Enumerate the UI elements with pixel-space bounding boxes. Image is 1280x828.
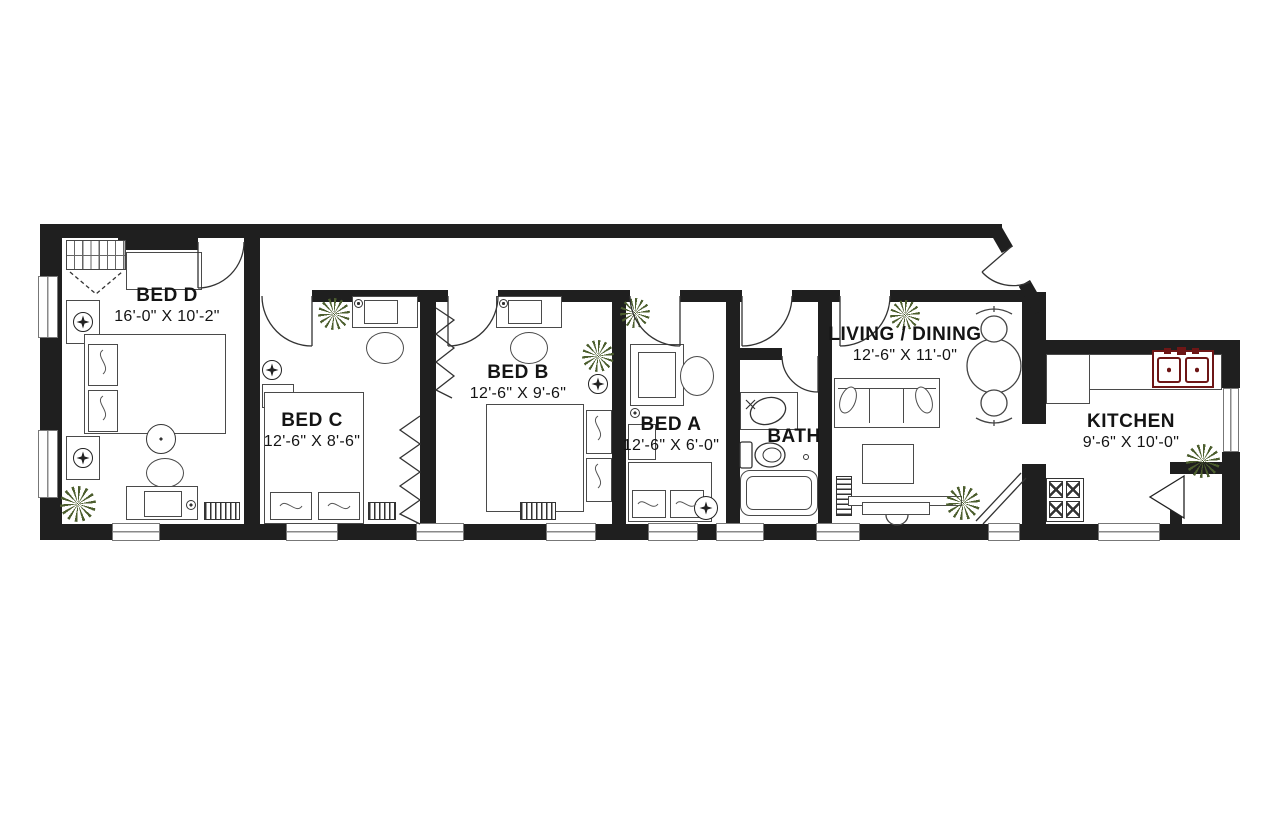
room-dimensions: 9'-6" X 10'-0" [1061,435,1201,452]
bath-door-stop [804,455,809,460]
door-bed-d [198,242,244,288]
door-bed-c [262,296,312,346]
dining-chair-back [976,306,1012,314]
accordion-door-bed-c [400,416,420,524]
dining-chair [981,390,1007,416]
tv-stand [886,515,908,525]
door-living-kitchen-diagonal [976,473,1026,524]
room-dimensions: 12'-6" X 8'-6" [242,434,382,451]
room-label-bed-d: BED D 16'-0" X 10'-2" [97,286,237,326]
tv-stand-arc [886,515,908,525]
room-dimensions: 16'-0" X 10'-2" [97,309,237,326]
room-label-living-dining: LIVING / DINING 12'-6" X 11'-0" [825,325,985,365]
room-label-kitchen: KITCHEN 9'-6" X 10'-0" [1061,412,1201,452]
room-name: BED B [448,363,588,383]
door-bed-a [630,296,680,346]
room-name: BED C [242,411,382,431]
room-dimensions: 12'-6" X 6'-0" [601,438,741,455]
dining-chair-back [976,418,1012,426]
bath-sink-basin [747,393,789,429]
floor-plan: BED D 16'-0" X 10'-2" BED C 12'-6" X 8'-… [0,0,1280,828]
door-bath-vestibule [742,296,792,346]
door-bed-b [448,296,498,346]
door-entry [982,246,1030,286]
room-name: BED D [97,286,237,306]
room-label-bed-c: BED C 12'-6" X 8'-6" [242,411,382,451]
toilet-tank [740,442,752,468]
room-label-bath: BATH [758,427,830,447]
room-label-bed-a: BED A 12'-6" X 6'-0" [601,415,741,455]
room-dimensions: 12'-6" X 9'-6" [448,386,588,403]
room-dimensions: 12'-6" X 11'-0" [825,348,985,365]
room-name: BATH [758,427,830,447]
room-label-bed-b: BED B 12'-6" X 9'-6" [448,363,588,403]
room-name: LIVING / DINING [825,325,985,345]
room-name: KITCHEN [1061,412,1201,432]
kitchen-back-door [1150,476,1184,518]
accordion-closet-doors [400,308,454,524]
room-name: BED A [601,415,741,435]
door-bath [782,356,818,392]
kitchen-door-leaf [1150,476,1184,518]
